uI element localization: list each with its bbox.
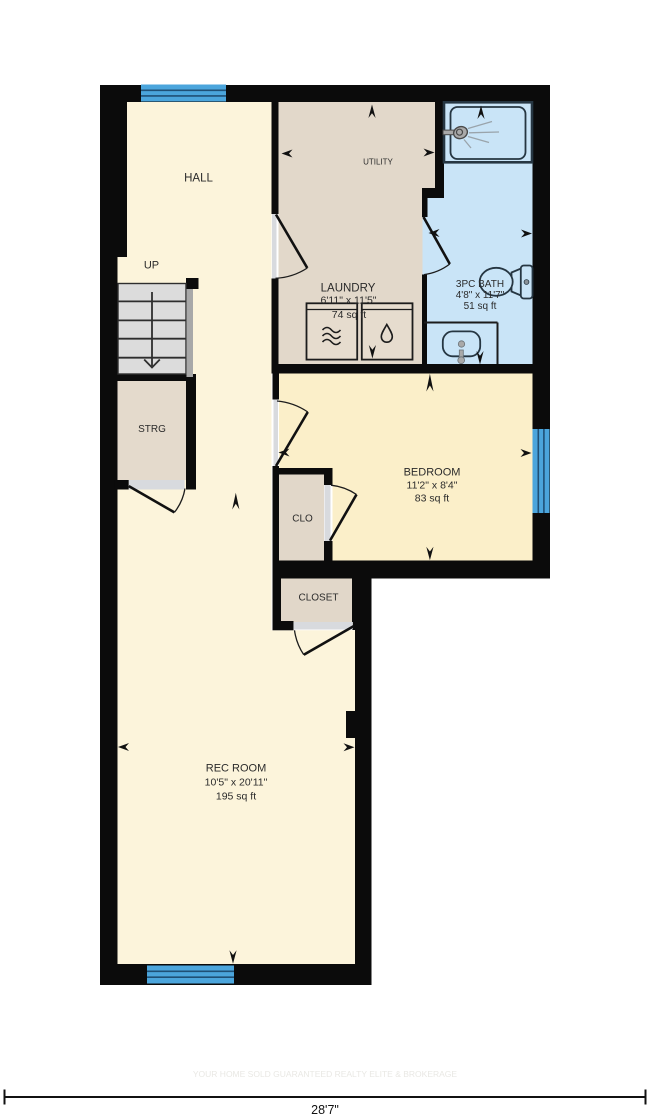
svg-text:STRG: STRG — [138, 424, 166, 435]
svg-text:11'2" x 8'4": 11'2" x 8'4" — [407, 480, 458, 492]
svg-text:51 sq ft: 51 sq ft — [464, 301, 497, 312]
svg-text:3PC BATH: 3PC BATH — [456, 279, 504, 290]
svg-text:195 sq ft: 195 sq ft — [216, 791, 256, 803]
svg-text:28'7": 28'7" — [311, 1103, 339, 1117]
svg-text:UTILITY: UTILITY — [363, 157, 393, 166]
svg-text:6'11" x 11'5": 6'11" x 11'5" — [320, 295, 376, 307]
svg-text:CLOSET: CLOSET — [298, 593, 338, 604]
svg-text:10'5" x 20'11": 10'5" x 20'11" — [205, 777, 268, 789]
svg-text:83 sq ft: 83 sq ft — [415, 493, 450, 505]
svg-text:BEDROOM: BEDROOM — [404, 467, 461, 479]
svg-text:LAUNDRY: LAUNDRY — [321, 283, 376, 295]
svg-text:REC ROOM: REC ROOM — [206, 763, 267, 775]
svg-text:74 sq ft: 74 sq ft — [332, 309, 367, 321]
svg-text:YOUR HOME SOLD GUARANTEED REAL: YOUR HOME SOLD GUARANTEED REALTY ELITE &… — [193, 1069, 458, 1079]
svg-text:CLO: CLO — [292, 514, 313, 525]
svg-text:HALL: HALL — [184, 173, 213, 185]
svg-text:UP: UP — [144, 260, 159, 272]
svg-text:4'8" x 11'7": 4'8" x 11'7" — [456, 290, 505, 301]
